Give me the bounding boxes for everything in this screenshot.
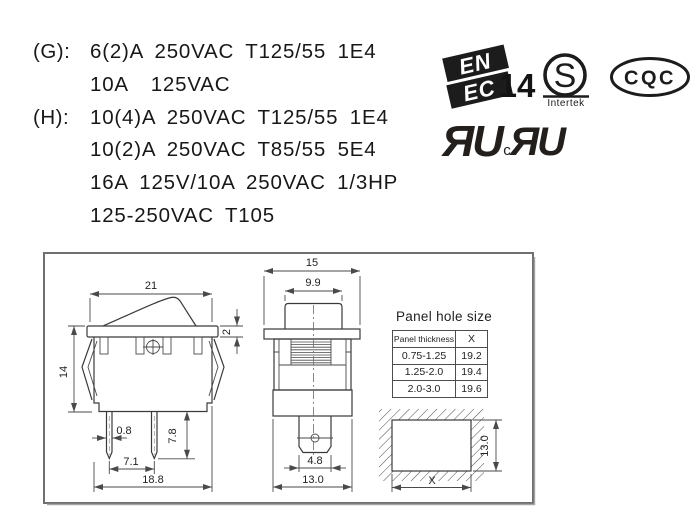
col-header-panel-thickness: Panel thickness xyxy=(393,331,456,347)
table-row: 0.75-1.25 19.2 xyxy=(393,347,487,364)
dim-label-cutout-13-0: 13.0 xyxy=(479,435,491,456)
ul-marks: ЯU c ЯU xyxy=(441,117,567,166)
enec-logo: EN EC 14 xyxy=(440,44,536,109)
dim-label-2: 2 xyxy=(221,329,233,335)
cell-x: 19.2 xyxy=(456,348,487,364)
panel-hole-table: Panel thickness X 0.75-1.25 19.2 1.25-2.… xyxy=(392,330,488,398)
dim-label-0-8: 0.8 xyxy=(116,425,131,437)
bezel xyxy=(87,326,218,337)
right-clip xyxy=(214,339,224,400)
cqc-logo: CQC xyxy=(612,59,689,96)
cqc-text: CQC xyxy=(624,68,676,90)
datasheet-page: (G): 6(2)A 250VAC T125/55 1E4 10A 125VAC… xyxy=(0,0,700,526)
body-upper xyxy=(274,339,351,390)
rocker-profile xyxy=(103,297,196,326)
left-clip xyxy=(82,339,92,400)
dim-label-18-8: 18.8 xyxy=(142,474,163,486)
intertek-label: Intertek xyxy=(547,98,585,109)
cell-thickness: 0.75-1.25 xyxy=(393,348,456,364)
enec-number: 14 xyxy=(499,67,536,104)
cutout-hole xyxy=(392,420,471,471)
dim-label-9-9: 9.9 xyxy=(305,277,320,289)
intertek-s-logo: S Intertek xyxy=(543,55,589,109)
ul-recognized-mark: ЯU xyxy=(441,117,505,166)
dim-label-7-1: 7.1 xyxy=(123,456,138,468)
panel-cutout-drawing: 13.0 X xyxy=(379,409,502,492)
enec-text-ec: EC xyxy=(461,75,498,107)
cul-recognized-mark: ЯU xyxy=(509,120,567,164)
body-base xyxy=(273,390,352,416)
intertek-s: S xyxy=(554,57,577,95)
side-view-drawing: 21 2 14 xyxy=(58,280,243,492)
dim-label-14: 14 xyxy=(58,366,70,378)
dim-label-21: 21 xyxy=(145,280,157,292)
cell-x: 19.6 xyxy=(456,381,487,397)
latch-ribs xyxy=(291,342,331,363)
dim-label-cutout-x: X xyxy=(428,475,436,487)
dim-label-15: 15 xyxy=(306,257,318,269)
cell-thickness: 2.0-3.0 xyxy=(393,381,456,397)
end-view-drawing: 15 9.9 xyxy=(264,257,360,492)
panel-table-title: Panel hole size xyxy=(396,309,492,324)
dim-label-7-8: 7.8 xyxy=(167,428,179,443)
col-header-x: X xyxy=(456,331,487,347)
bezel-front xyxy=(264,329,360,339)
table-header-row: Panel thickness X xyxy=(393,331,487,347)
cell-x: 19.4 xyxy=(456,365,487,381)
table-row: 1.25-2.0 19.4 xyxy=(393,364,487,381)
table-row: 2.0-3.0 19.6 xyxy=(393,380,487,397)
drawing-canvas: EN EC 14 S Intertek CQC ЯU c ЯU xyxy=(0,0,700,526)
cell-thickness: 1.25-2.0 xyxy=(393,365,456,381)
dim-label-13-0: 13.0 xyxy=(302,474,323,486)
dim-label-4-8: 4.8 xyxy=(307,455,322,467)
